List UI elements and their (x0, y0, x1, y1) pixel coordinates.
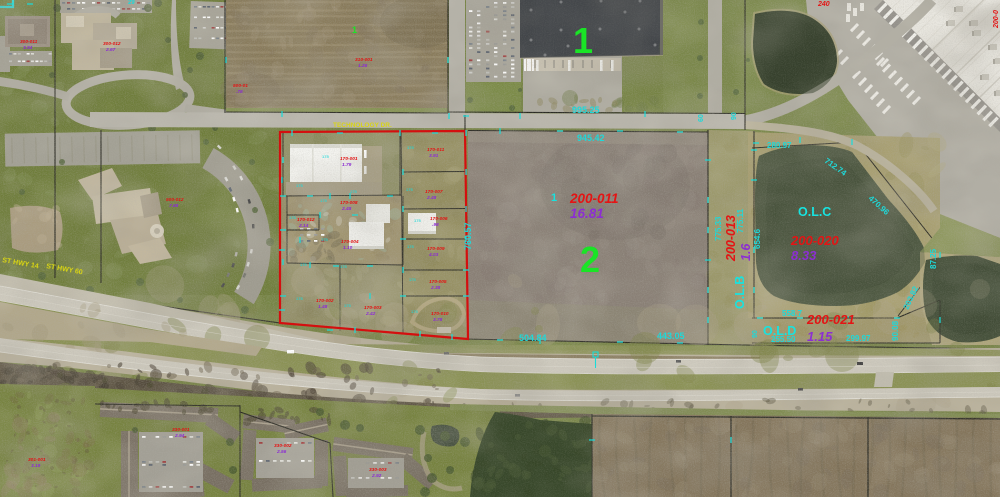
svg-text:170-009: 170-009 (427, 246, 445, 252)
svg-text:500-012: 500-012 (166, 197, 184, 203)
svg-text:170-002: 170-002 (316, 298, 334, 304)
svg-text:3.78: 3.78 (433, 317, 443, 323)
svg-text:2.48: 2.48 (426, 195, 437, 201)
svg-text:170-003: 170-003 (364, 305, 382, 311)
svg-text:1.26: 1.26 (358, 63, 368, 69)
svg-text:O.L.C: O.L.C (798, 205, 831, 219)
svg-text:175: 175 (409, 277, 416, 282)
svg-text:2: 2 (580, 239, 600, 280)
svg-text:170-005: 170-005 (429, 279, 447, 285)
svg-text:301-001: 301-001 (28, 457, 46, 463)
svg-text:1.15: 1.15 (807, 329, 833, 344)
svg-text:175: 175 (340, 264, 347, 269)
svg-text:280.97: 280.97 (767, 141, 792, 150)
svg-text:1: 1 (573, 20, 593, 61)
svg-text:310-001: 310-001 (355, 57, 373, 63)
svg-text:775.11: 775.11 (736, 208, 745, 233)
svg-text:2.92: 2.92 (371, 473, 382, 479)
svg-text:2.48: 2.48 (341, 206, 352, 212)
svg-text:504.84: 504.84 (519, 333, 547, 343)
svg-text:3.94: 3.94 (23, 45, 33, 51)
svg-text:170-010: 170-010 (431, 311, 449, 317)
svg-text:200-020: 200-020 (790, 233, 839, 248)
svg-text:29: 29 (128, 0, 135, 6)
svg-text:3.19: 3.19 (31, 463, 41, 469)
svg-text:170-007: 170-007 (425, 189, 443, 195)
svg-text:60: 60 (698, 114, 705, 122)
svg-text:3.91: 3.91 (429, 153, 439, 159)
svg-text:175: 175 (350, 189, 357, 194)
svg-text:90: 90 (731, 112, 738, 120)
svg-text:330-003: 330-003 (369, 467, 387, 473)
svg-text:760.57: 760.57 (463, 222, 473, 250)
svg-text:90: 90 (752, 330, 759, 338)
svg-text:330-001: 330-001 (172, 427, 190, 433)
svg-text:175: 175 (411, 309, 418, 314)
svg-text:2.38: 2.38 (430, 285, 441, 291)
svg-text:7.68: 7.68 (169, 203, 179, 209)
svg-text:255.50: 255.50 (771, 335, 796, 344)
svg-text:175: 175 (296, 183, 303, 188)
svg-text:1.6: 1.6 (739, 243, 753, 261)
svg-text:175: 175 (289, 215, 296, 220)
svg-text:170-006: 170-006 (430, 216, 448, 222)
svg-text:175: 175 (322, 154, 329, 159)
svg-text:240: 240 (817, 1, 830, 8)
svg-text:330-002: 330-002 (274, 443, 292, 449)
svg-text:1: 1 (551, 192, 557, 204)
svg-text:16.81: 16.81 (570, 206, 604, 221)
svg-text:175: 175 (320, 198, 327, 203)
svg-text:90.08: 90.08 (891, 320, 900, 341)
svg-text:170-008: 170-008 (340, 200, 358, 206)
svg-text:170-001: 170-001 (340, 156, 358, 162)
svg-text:200-011: 200-011 (569, 191, 619, 206)
svg-text:175: 175 (300, 262, 307, 267)
svg-text:4.03: 4.03 (428, 252, 439, 258)
svg-text:500-01: 500-01 (233, 83, 248, 89)
svg-text:654.6: 654.6 (753, 228, 762, 249)
svg-text:300-011: 300-011 (20, 39, 38, 45)
svg-text:170-004: 170-004 (341, 239, 359, 245)
svg-text:200-0: 200-0 (993, 10, 1000, 29)
svg-text:175: 175 (406, 187, 413, 192)
svg-text:1: 1 (352, 25, 357, 35)
svg-text:300-012: 300-012 (103, 41, 121, 47)
svg-text:175: 175 (321, 237, 328, 242)
svg-text:558.7: 558.7 (782, 309, 803, 318)
svg-text:8.33: 8.33 (791, 248, 817, 263)
svg-text:200-021: 200-021 (806, 312, 855, 327)
svg-text:775.33: 775.33 (714, 216, 723, 241)
svg-text:2.67: 2.67 (105, 47, 116, 53)
svg-text:.76: .76 (236, 89, 243, 95)
svg-text:2.14: 2.14 (298, 223, 309, 229)
svg-text:175: 175 (414, 218, 421, 223)
svg-text:443.05: 443.05 (657, 331, 685, 341)
svg-text:2.42: 2.42 (365, 311, 376, 317)
svg-text:TECHNOLOGY DR.: TECHNOLOGY DR. (333, 122, 392, 129)
svg-text:175: 175 (407, 145, 414, 150)
svg-text:87.25: 87.25 (929, 248, 938, 269)
svg-text:175: 175 (344, 303, 351, 308)
svg-text:175: 175 (296, 296, 303, 301)
svg-text:2.94: 2.94 (174, 433, 185, 439)
svg-text:1.10: 1.10 (343, 245, 353, 251)
svg-text:995.25: 995.25 (572, 105, 600, 115)
svg-text:1.79: 1.79 (342, 162, 352, 168)
svg-text:175: 175 (407, 244, 414, 249)
svg-text:.98: .98 (432, 222, 439, 228)
svg-text:170-011: 170-011 (427, 147, 445, 153)
svg-text:299.97: 299.97 (846, 334, 871, 343)
svg-text:945.42: 945.42 (577, 133, 605, 143)
svg-text:2.56: 2.56 (276, 449, 287, 455)
svg-text:1.48: 1.48 (318, 304, 328, 310)
svg-text:O.L.B: O.L.B (733, 276, 747, 309)
svg-text:170-012: 170-012 (297, 217, 315, 223)
